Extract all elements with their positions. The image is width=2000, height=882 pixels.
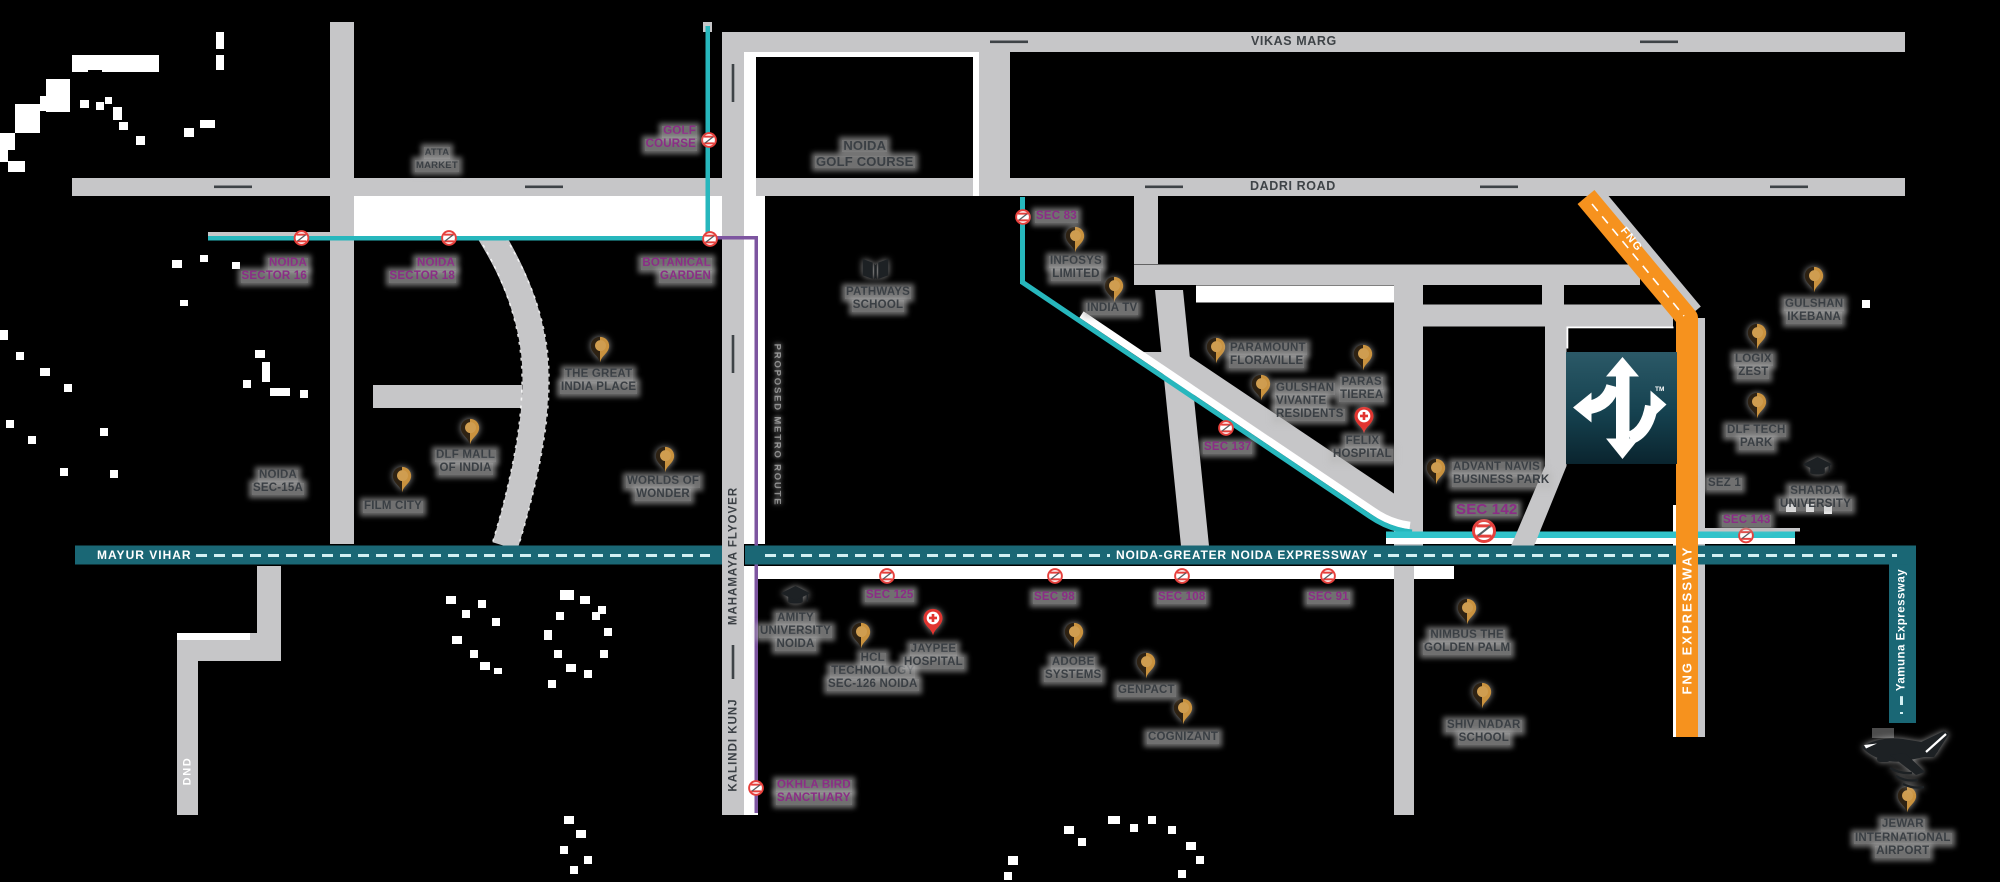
svg-text:TM: TM bbox=[1655, 386, 1664, 393]
